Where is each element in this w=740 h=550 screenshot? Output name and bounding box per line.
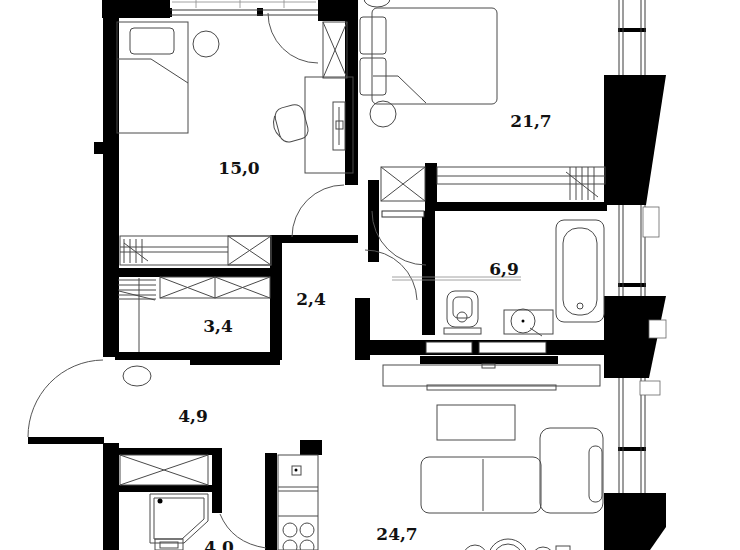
sliding-door-leaf — [479, 342, 546, 353]
room-label-corridor: 4,9 — [178, 406, 208, 426]
double-bed — [372, 8, 497, 104]
room-bedroom-2: 21,7 — [360, 0, 605, 201]
sliding-door-leaf — [426, 342, 472, 353]
walls — [28, 0, 666, 550]
floor-plan-drawing: 15,0 21,7 — [0, 0, 740, 550]
storage-boxes — [160, 277, 270, 298]
bathroom-door-arc — [372, 211, 426, 265]
window-sill-box — [643, 207, 659, 237]
shower-cabin — [150, 494, 208, 543]
bathroom-door-leaf — [382, 211, 424, 217]
room-label-shower: 4,0 — [204, 537, 234, 550]
room-label-bedroom-2: 21,7 — [510, 111, 551, 131]
window-right-2 — [619, 205, 659, 296]
coffee-table — [437, 405, 515, 440]
facade-column-top — [604, 75, 666, 205]
closet-cabinet — [437, 167, 605, 200]
wardrobe — [323, 22, 347, 78]
room-label-bathroom: 6,9 — [489, 259, 519, 279]
shelf-unit — [118, 278, 156, 352]
room-corridor: 4,9 — [123, 366, 208, 426]
lamp — [364, 0, 390, 7]
room-label-wardrobe: 3,4 — [203, 316, 233, 336]
wardrobe-row — [120, 236, 271, 265]
wardrobe — [381, 167, 425, 201]
mirror — [123, 366, 151, 386]
stove-burners — [283, 523, 314, 550]
room-wardrobe: 3,4 — [118, 277, 270, 352]
window-right-1 — [619, 0, 645, 75]
desk-chair — [270, 103, 310, 145]
pouf — [370, 101, 396, 127]
window-sill-box — [649, 320, 666, 338]
stool — [193, 31, 219, 57]
kitchen-unit — [278, 455, 318, 550]
tv — [420, 356, 558, 364]
facade-column-bottom — [604, 493, 666, 550]
wardrobe — [120, 455, 208, 485]
washbasin — [155, 539, 183, 550]
toilet — [444, 291, 481, 334]
room-label-hallway: 2,4 — [296, 289, 326, 309]
washing-machine — [504, 309, 553, 336]
sofa — [421, 428, 603, 513]
room-label-bedroom-1: 15,0 — [218, 158, 260, 178]
window-top — [170, 0, 318, 15]
entry-door-arc — [28, 360, 103, 437]
nightstand — [360, 17, 386, 54]
bathtub — [556, 220, 604, 322]
floor-plan: 15,0 21,7 — [0, 0, 740, 550]
dining-table — [463, 539, 570, 550]
room-label-living: 24,7 — [376, 524, 417, 544]
balcony-door-arc — [268, 13, 318, 63]
single-bed — [117, 22, 188, 133]
window-sill-box — [640, 381, 660, 395]
bedroom1-door-arc — [292, 185, 344, 237]
room-living: 24,7 — [278, 356, 603, 550]
room-bedroom-1: 15,0 — [117, 22, 353, 265]
